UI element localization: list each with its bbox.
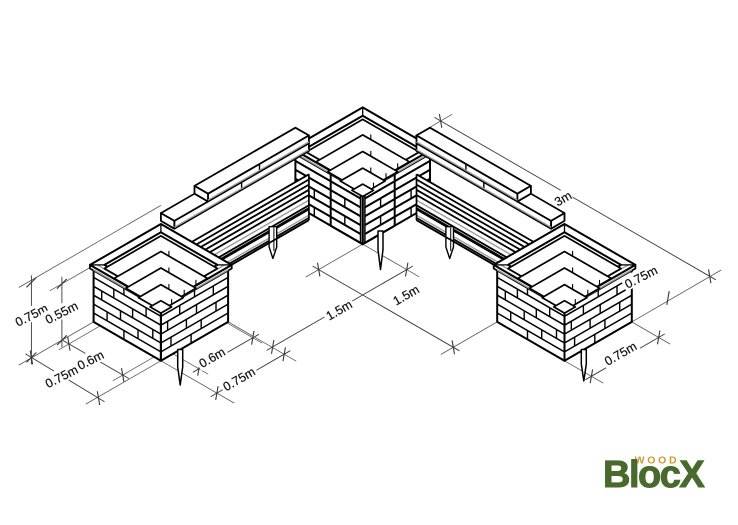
svg-text:BlocX: BlocX bbox=[603, 454, 705, 496]
